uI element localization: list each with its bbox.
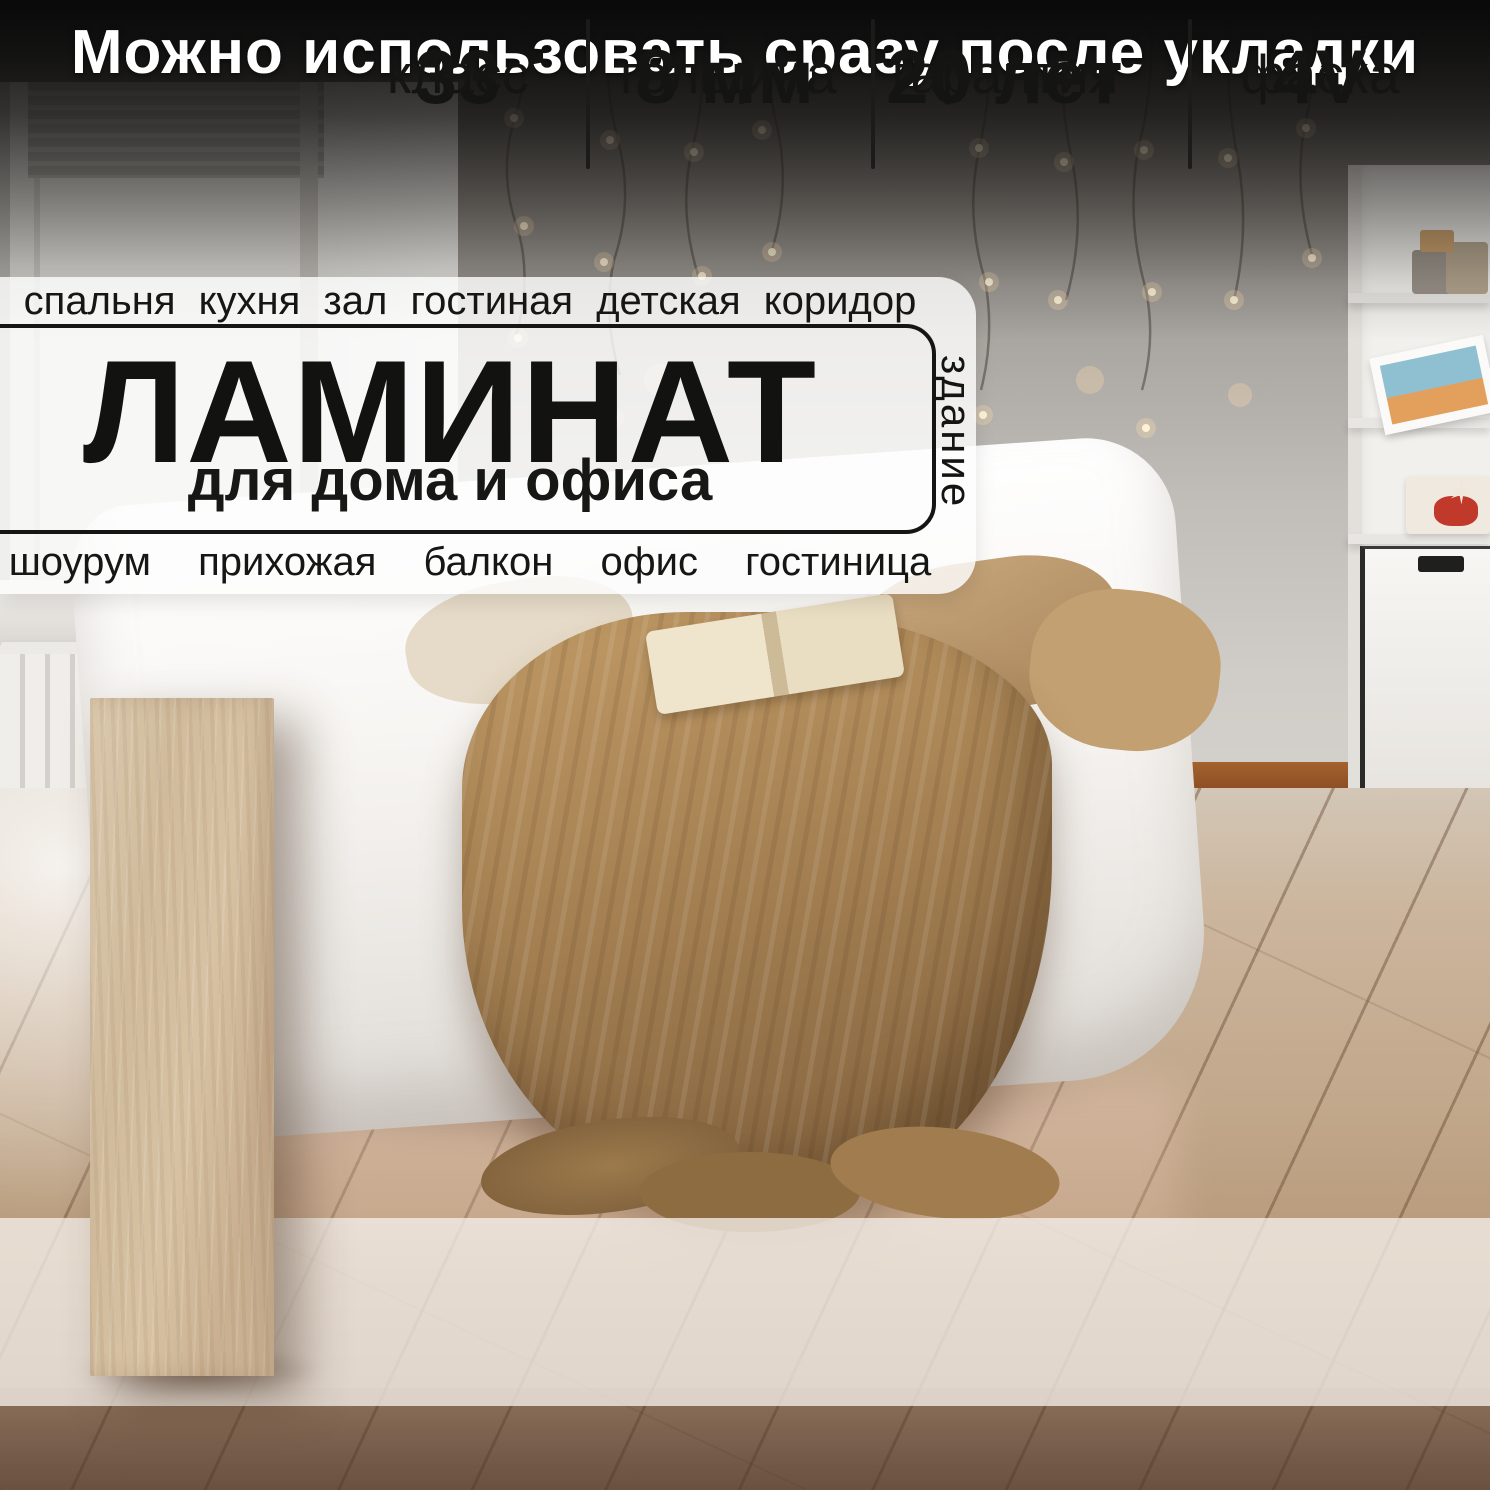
laminate-plank-sample xyxy=(90,698,274,1376)
knit-throw xyxy=(462,612,1052,1202)
badge-warranty: 20 лет гарантия xyxy=(875,0,1135,188)
badge-label: фаска xyxy=(1240,47,1399,102)
product-card: ✶ xyxy=(0,0,1490,1490)
badge-thickness: 8 мм толщина xyxy=(595,0,855,188)
side-label-vertical: здание xyxy=(932,355,980,519)
shelf-board xyxy=(1348,534,1490,544)
info-box: спальня кухня зал гостиная детская корид… xyxy=(0,277,976,594)
badge-label: класс xyxy=(387,47,529,102)
badge-label: гарантия xyxy=(892,47,1119,102)
category-row-bottom: шоурум прихожая балкон офис гостиница xyxy=(0,536,940,588)
category-row-top: спальня кухня зал гостиная детская корид… xyxy=(0,277,940,326)
drawer-handle xyxy=(1418,556,1464,572)
badge-label: толщина xyxy=(614,47,837,102)
page-subtitle: для дома и офиса xyxy=(0,449,900,513)
badge-bevel: 4V фаска xyxy=(1190,0,1450,188)
drawer-box xyxy=(1360,546,1490,806)
badge-class: 33 класс xyxy=(328,0,588,188)
